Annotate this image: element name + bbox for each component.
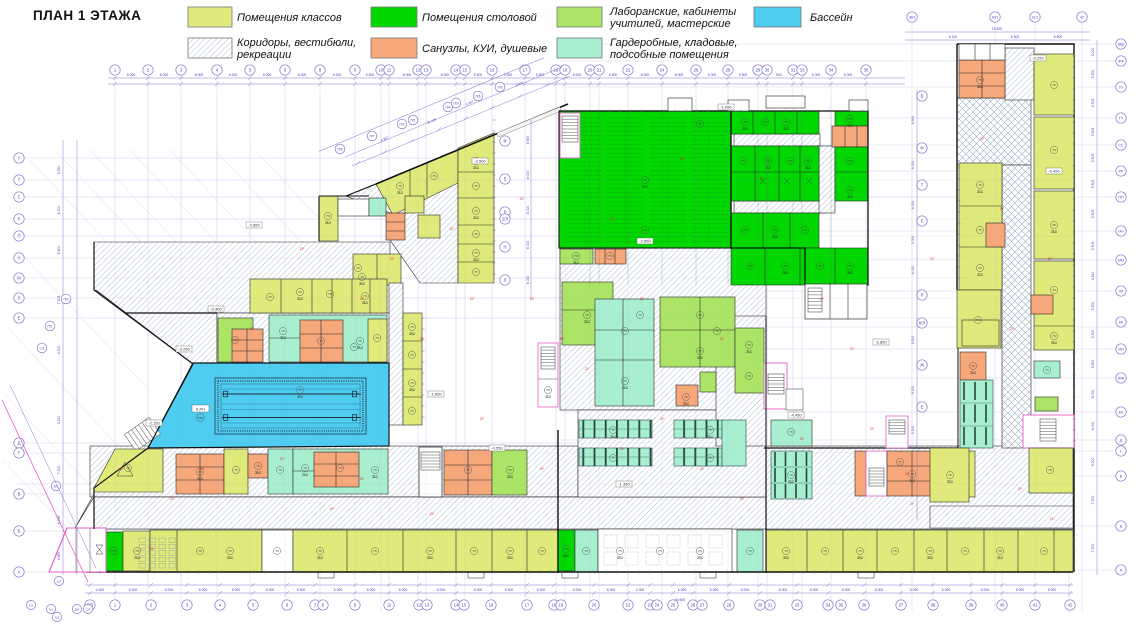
svg-text:8 800: 8 800 (57, 246, 61, 255)
svg-text:52.3: 52.3 (765, 165, 771, 169)
svg-text:6 000: 6 000 (526, 171, 530, 180)
svg-text:6 000: 6 000 (675, 73, 684, 77)
svg-text:А: А (18, 570, 21, 575)
svg-text:6 000: 6 000 (127, 73, 136, 77)
svg-text:7б: 7б (410, 381, 414, 385)
svg-text:7б: 7б (638, 313, 642, 317)
svg-text:Н: Н (503, 245, 506, 250)
svg-text:6 000: 6 000 (298, 73, 307, 77)
svg-text:6 300: 6 300 (607, 588, 616, 592)
svg-text:7б: 7б (971, 364, 975, 368)
svg-text:27: 27 (700, 603, 705, 608)
svg-text:6 000: 6 000 (333, 73, 342, 77)
svg-text:3 000: 3 000 (911, 236, 915, 245)
svg-text:52.3: 52.3 (473, 257, 479, 261)
svg-text:7б: 7б (472, 549, 476, 553)
svg-text:Ж: Ж (920, 363, 924, 368)
svg-text:Е: Е (18, 316, 21, 321)
svg-text:6 000: 6 000 (403, 73, 412, 77)
svg-text:7б: 7б (698, 349, 702, 353)
svg-text:7б: 7б (375, 336, 379, 340)
svg-text:6 000: 6 000 (810, 588, 819, 592)
svg-text:52.3: 52.3 (473, 165, 479, 169)
svg-text:52.3: 52.3 (409, 331, 415, 335)
svg-text:Коридоры, вестибюли,: Коридоры, вестибюли, (237, 37, 356, 49)
svg-text:ПП: ПП (1118, 196, 1124, 200)
svg-text:7б: 7б (1052, 223, 1056, 227)
svg-text:9 200: 9 200 (1091, 458, 1095, 467)
svg-text:7б: 7б (398, 184, 402, 188)
svg-text:28: 28 (726, 68, 731, 73)
svg-text:-0.550: -0.550 (491, 446, 503, 451)
svg-text:52.3: 52.3 (707, 434, 713, 438)
svg-text:52.3: 52.3 (697, 355, 703, 359)
svg-text:7б: 7б (684, 395, 688, 399)
svg-text:5 504: 5 504 (1091, 242, 1095, 251)
svg-text:6 000: 6 000 (129, 588, 138, 592)
svg-text:М: М (17, 276, 21, 281)
svg-text:26: 26 (694, 68, 699, 73)
svg-text:25: 25 (671, 603, 676, 608)
svg-text:21: 21 (597, 68, 602, 73)
svg-text:52.3: 52.3 (697, 555, 703, 559)
svg-text:33: 33 (795, 603, 800, 608)
svg-text:3 000: 3 000 (1091, 48, 1095, 57)
svg-text:7б: 7б (1052, 83, 1056, 87)
svg-text:7б: 7б (763, 120, 767, 124)
svg-text:6 000: 6 000 (710, 588, 719, 592)
svg-text:6 500: 6 500 (1011, 35, 1020, 39)
svg-text:4 400: 4 400 (96, 588, 105, 592)
svg-text:7б: 7б (978, 228, 982, 232)
svg-text:75А: 75А (198, 416, 203, 420)
svg-text:52.3: 52.3 (622, 385, 628, 389)
svg-text:52.3: 52.3 (507, 474, 513, 478)
svg-text:7б: 7б (848, 264, 852, 268)
svg-text:А/2: А/2 (55, 616, 60, 620)
svg-text:34: 34 (829, 68, 834, 73)
svg-text:7б: 7б (326, 214, 330, 218)
svg-text:41/1: 41/1 (1032, 16, 1039, 20)
svg-text:7б: 7б (228, 549, 232, 553)
svg-text:5 500: 5 500 (739, 73, 748, 77)
svg-text:6 000: 6 000 (641, 73, 650, 77)
svg-text:7б: 7б (373, 468, 377, 472)
svg-text:12Г: 12Г (57, 580, 62, 584)
svg-text:Б: Б (18, 529, 21, 534)
svg-text:7б: 7б (546, 388, 550, 392)
svg-text:36: 36 (862, 603, 867, 608)
svg-text:52.3: 52.3 (847, 270, 853, 274)
svg-text:7б: 7б (508, 549, 512, 553)
svg-text:40/1: 40/1 (992, 16, 999, 20)
svg-text:-2.500: -2.500 (474, 159, 486, 164)
svg-text:22: 22 (626, 68, 631, 73)
svg-text:7б: 7б (698, 549, 702, 553)
svg-text:Гардеробные, кладовые,: Гардеробные, кладовые, (610, 37, 738, 49)
svg-text:Е: Е (504, 177, 507, 182)
svg-text:7б: 7б (623, 329, 627, 333)
svg-text:ЖЖ: ЖЖ (1118, 377, 1125, 381)
svg-text:15: 15 (462, 603, 467, 608)
svg-text:7 200: 7 200 (57, 466, 61, 475)
svg-text:6 900: 6 900 (526, 136, 530, 145)
svg-text:7б: 7б (268, 295, 272, 299)
svg-text:52.3: 52.3 (1051, 229, 1057, 233)
svg-text:7б: 7б (823, 549, 827, 553)
svg-text:7б: 7б (818, 264, 822, 268)
svg-text:52.3: 52.3 (977, 272, 983, 276)
svg-text:52.3: 52.3 (359, 281, 365, 285)
svg-text:7б: 7б (623, 379, 627, 383)
svg-text:11: 11 (387, 68, 392, 73)
svg-text:7б: 7б (618, 549, 622, 553)
svg-text:7б: 7б (410, 409, 414, 413)
svg-text:-0.250: -0.250 (1032, 56, 1044, 61)
svg-text:52.3: 52.3 (584, 319, 590, 323)
svg-text:5 503: 5 503 (1091, 99, 1095, 108)
svg-text:7б: 7б (608, 254, 612, 258)
svg-text:7 200: 7 200 (1091, 496, 1095, 505)
svg-text:7б: 7б (540, 549, 544, 553)
svg-text:Е: Е (921, 219, 924, 224)
svg-text:33: 33 (800, 68, 805, 73)
svg-text:К.РН: К.РН (196, 407, 205, 412)
svg-text:6 200: 6 200 (57, 206, 61, 215)
svg-text:52.3: 52.3 (302, 472, 308, 476)
svg-text:500: 500 (776, 73, 782, 77)
svg-text:52.3: 52.3 (297, 394, 303, 398)
svg-text:7б: 7б (698, 122, 702, 126)
svg-text:5 500: 5 500 (504, 73, 513, 77)
svg-text:24: 24 (655, 603, 660, 608)
svg-text:Ф: Ф (503, 139, 506, 144)
svg-text:6 000: 6 000 (526, 241, 530, 250)
svg-text:7б: 7б (848, 188, 852, 192)
svg-text:6 000: 6 000 (779, 588, 788, 592)
svg-text:34: 34 (826, 603, 831, 608)
svg-text:Р: Р (921, 293, 924, 298)
svg-text:-1.350: -1.350 (618, 482, 630, 487)
svg-text:6 000: 6 000 (708, 73, 717, 77)
svg-text:-2.150: -2.150 (148, 421, 160, 426)
svg-text:7б: 7б (328, 292, 332, 296)
svg-text:52.3: 52.3 (427, 555, 433, 559)
svg-text:С: С (17, 195, 20, 200)
svg-text:9 200: 9 200 (911, 386, 915, 395)
svg-text:ЕЕ: ЕЕ (1119, 411, 1124, 415)
svg-text:19: 19 (559, 603, 564, 608)
svg-text:-0.300: -0.300 (210, 307, 222, 312)
svg-text:24: 24 (660, 68, 665, 73)
svg-text:7б: 7б (611, 428, 615, 432)
svg-text:Бассейн: Бассейн (810, 12, 853, 24)
svg-text:52.3: 52.3 (977, 84, 983, 88)
svg-text:П/7: П/7 (370, 135, 375, 139)
svg-text:36: 36 (864, 68, 869, 73)
svg-text:7б: 7б (585, 313, 589, 317)
svg-text:7 203: 7 203 (57, 296, 61, 305)
svg-text:37: 37 (899, 603, 904, 608)
svg-text:7б: 7б (1052, 334, 1056, 338)
svg-text:7б: 7б (474, 232, 478, 236)
svg-text:7б: 7б (198, 549, 202, 553)
svg-text:26: 26 (691, 603, 696, 608)
svg-text:52.3: 52.3 (997, 555, 1003, 559)
svg-text:П/6: П/6 (476, 95, 481, 99)
svg-text:7б: 7б (352, 345, 356, 349)
svg-text:3 200: 3 200 (911, 426, 915, 435)
svg-text:52.3: 52.3 (805, 165, 811, 169)
svg-text:Т: Т (18, 178, 21, 183)
svg-text:52.3: 52.3 (255, 470, 261, 474)
svg-text:7б: 7б (611, 456, 615, 460)
svg-text:С/1: С/1 (40, 347, 45, 351)
svg-text:ММ: ММ (1118, 259, 1124, 263)
svg-text:7б: 7б (806, 159, 810, 163)
svg-text:-3.250: -3.250 (178, 347, 190, 352)
svg-text:7б: 7б (508, 468, 512, 472)
svg-text:20: 20 (592, 603, 597, 608)
svg-text:В: В (18, 492, 21, 497)
svg-text:РР: РР (1119, 170, 1124, 174)
svg-text:7б: 7б (112, 549, 116, 553)
svg-text:Помещения классов: Помещения классов (237, 12, 342, 24)
svg-text:6 000: 6 000 (232, 588, 241, 592)
svg-text:52.3: 52.3 (197, 476, 203, 480)
svg-text:52.3: 52.3 (783, 126, 789, 130)
svg-text:7б: 7б (743, 120, 747, 124)
svg-text:17: 17 (523, 68, 528, 73)
svg-text:35: 35 (839, 603, 844, 608)
svg-text:П: П (17, 234, 20, 239)
svg-text:52.3: 52.3 (134, 555, 140, 559)
svg-text:6 000: 6 000 (911, 266, 915, 275)
svg-text:52.3: 52.3 (977, 189, 983, 193)
svg-text:7б: 7б (428, 549, 432, 553)
svg-text:17: 17 (525, 603, 530, 608)
svg-text:7б: 7б (773, 228, 777, 232)
svg-text:7б: 7б (574, 254, 578, 258)
svg-text:2/Л: 2/Л (502, 217, 508, 222)
svg-text:НН: НН (1118, 230, 1124, 234)
svg-text:7б: 7б (998, 549, 1002, 553)
svg-text:Г: Г (1120, 450, 1122, 454)
svg-text:5 500: 5 500 (505, 588, 514, 592)
svg-text:7б: 7б (948, 473, 952, 477)
svg-text:7б: 7б (1042, 549, 1046, 553)
svg-text:П/3: П/3 (454, 102, 459, 106)
svg-text:7б: 7б (803, 228, 807, 232)
svg-text:7б: 7б (658, 549, 662, 553)
svg-text:7б: 7б (784, 549, 788, 553)
svg-text:6 000: 6 000 (875, 588, 884, 592)
svg-text:16: 16 (490, 68, 495, 73)
svg-text:П/1: П/1 (48, 325, 53, 329)
svg-text:6 000: 6 000 (911, 161, 915, 170)
svg-text:30: 30 (758, 603, 763, 608)
svg-text:41: 41 (1033, 603, 1038, 608)
svg-text:14: 14 (454, 68, 459, 73)
svg-text:6 100: 6 100 (949, 35, 958, 39)
svg-text:7б: 7б (432, 174, 436, 178)
svg-text:Т: Т (921, 183, 924, 188)
svg-text:Е: Е (921, 405, 924, 410)
svg-text:38: 38 (931, 603, 936, 608)
svg-text:6 000: 6 000 (199, 588, 208, 592)
svg-text:6 000: 6 000 (437, 588, 446, 592)
svg-text:7б: 7б (858, 549, 862, 553)
svg-text:4 850: 4 850 (57, 552, 61, 561)
svg-text:5 500: 5 500 (1091, 302, 1095, 311)
svg-text:7б: 7б (848, 159, 852, 163)
svg-text:52.3: 52.3 (642, 184, 648, 188)
svg-text:52.3: 52.3 (610, 434, 616, 438)
svg-text:52.3: 52.3 (857, 555, 863, 559)
svg-text:-4.450: -4.450 (790, 413, 802, 418)
svg-text:8 000: 8 000 (1091, 390, 1095, 399)
svg-text:9 290: 9 290 (57, 166, 61, 175)
svg-text:31: 31 (791, 68, 796, 73)
svg-text:52.3: 52.3 (782, 270, 788, 274)
svg-text:5 500: 5 500 (1091, 360, 1095, 369)
svg-text:9 200: 9 200 (911, 336, 915, 345)
svg-text:6 000: 6 000 (334, 588, 343, 592)
svg-text:6 000: 6 000 (263, 73, 272, 77)
svg-text:6 000: 6 000 (160, 73, 169, 77)
svg-text:7б: 7б (358, 339, 362, 343)
svg-text:52.3: 52.3 (507, 555, 513, 559)
svg-text:П/9: П/9 (498, 86, 503, 90)
svg-text:12: 12 (416, 68, 421, 73)
svg-text:13: 13 (425, 603, 430, 608)
svg-text:-1.650: -1.650 (430, 392, 442, 397)
svg-text:7б: 7б (1048, 468, 1052, 472)
svg-text:6 000: 6 000 (399, 588, 408, 592)
svg-text:6 000: 6 000 (367, 588, 376, 592)
svg-text:ЛЛ: ЛЛ (1119, 290, 1124, 294)
svg-text:52.3: 52.3 (1051, 340, 1057, 344)
svg-text:52.3: 52.3 (545, 394, 551, 398)
svg-text:5 500: 5 500 (297, 588, 306, 592)
svg-text:52.3: 52.3 (783, 555, 789, 559)
svg-text:П/2: П/2 (400, 123, 405, 127)
svg-text:7б: 7б (410, 325, 414, 329)
svg-text:7б: 7б (474, 270, 478, 274)
svg-text:6 000: 6 000 (195, 73, 204, 77)
svg-text:П/5: П/5 (338, 148, 343, 152)
svg-text:ПЛАН 1 ЭТАЖА: ПЛАН 1 ЭТАЖА (33, 8, 141, 23)
svg-text:7б: 7б (360, 275, 364, 279)
svg-text:6 000: 6 000 (1016, 588, 1025, 592)
svg-text:14: 14 (454, 603, 459, 608)
svg-text:С/3: С/3 (86, 608, 91, 612)
svg-text:подсобные помещения: подсобные помещения (610, 49, 729, 61)
svg-text:7б: 7б (789, 473, 793, 477)
svg-text:7б: 7б (303, 466, 307, 470)
svg-text:31: 31 (768, 603, 773, 608)
svg-text:5 500: 5 500 (474, 73, 483, 77)
svg-text:ФФ: ФФ (1118, 60, 1124, 64)
svg-text:7б: 7б (298, 290, 302, 294)
svg-text:7б: 7б (1052, 288, 1056, 292)
svg-text:52.3: 52.3 (909, 478, 915, 482)
svg-text:7б: 7б (256, 464, 260, 468)
svg-text:7б: 7б (743, 228, 747, 232)
svg-text:-2.850: -2.850 (875, 340, 887, 345)
svg-text:7б: 7б (126, 466, 130, 470)
svg-text:Н: Н (17, 256, 20, 261)
svg-text:52.3: 52.3 (847, 123, 853, 127)
svg-text:6 000: 6 000 (1048, 588, 1057, 592)
svg-text:7б: 7б (783, 264, 787, 268)
svg-text:7б: 7б (234, 468, 238, 472)
svg-text:рекреации: рекреации (236, 49, 291, 61)
svg-text:4 300: 4 300 (636, 588, 645, 592)
svg-text:6 000: 6 000 (910, 588, 919, 592)
svg-text:7б: 7б (474, 184, 478, 188)
svg-text:6 000: 6 000 (942, 588, 951, 592)
svg-text:28: 28 (727, 603, 732, 608)
svg-text:7б: 7б (298, 388, 302, 392)
svg-text:52.3: 52.3 (617, 555, 623, 559)
svg-text:42: 42 (1080, 16, 1084, 20)
svg-text:19: 19 (563, 68, 568, 73)
svg-text:6 000: 6 000 (526, 206, 530, 215)
svg-text:СС: СС (1118, 144, 1124, 148)
svg-text:-2.850: -2.850 (248, 223, 260, 228)
svg-text:Л: Л (504, 278, 507, 283)
svg-text:6 000: 6 000 (678, 588, 687, 592)
svg-text:7б: 7б (741, 159, 745, 163)
svg-text:Р: Р (18, 217, 21, 222)
svg-text:7б: 7б (1045, 368, 1049, 372)
svg-text:7б: 7б (715, 329, 719, 333)
svg-text:У: У (18, 156, 21, 161)
svg-text:Б: Б (921, 94, 924, 99)
svg-text:7б: 7б (643, 228, 647, 232)
svg-text:7б: 7б (963, 549, 967, 553)
svg-text:УУ: УУ (1119, 86, 1124, 90)
svg-text:7б: 7б (784, 120, 788, 124)
svg-text:3 210: 3 210 (57, 416, 61, 425)
svg-text:10: 10 (379, 68, 384, 73)
svg-text:42: 42 (1068, 603, 1073, 608)
svg-text:29: 29 (756, 68, 761, 73)
svg-text:-1.050: -1.050 (720, 105, 732, 110)
svg-text:Лаборанские, кабинеты: Лаборанские, кабинеты (609, 6, 736, 18)
svg-text:К/Л: К/Л (919, 321, 926, 326)
svg-text:6 000: 6 000 (573, 588, 582, 592)
svg-text:6 000: 6 000 (812, 73, 821, 77)
svg-text:52.3: 52.3 (927, 555, 933, 559)
svg-text:7б: 7б (848, 117, 852, 121)
svg-text:7б: 7б (410, 353, 414, 357)
svg-text:52.3: 52.3 (788, 479, 794, 483)
svg-text:7б: 7б (789, 430, 793, 434)
svg-text:20: 20 (588, 68, 593, 73)
svg-text:22: 22 (626, 603, 631, 608)
svg-text:4 410: 4 410 (1091, 272, 1095, 281)
svg-text:Санузлы, КУИ, душевые: Санузлы, КУИ, душевые (422, 43, 547, 55)
svg-text:6 000: 6 000 (844, 73, 853, 77)
svg-text:52.3: 52.3 (563, 553, 569, 557)
svg-text:52.3: 52.3 (473, 215, 479, 219)
svg-text:7б: 7б (708, 456, 712, 460)
svg-text:6 600: 6 600 (1054, 35, 1063, 39)
svg-text:52.3: 52.3 (280, 335, 286, 339)
svg-text:П/3: П/3 (64, 298, 69, 302)
